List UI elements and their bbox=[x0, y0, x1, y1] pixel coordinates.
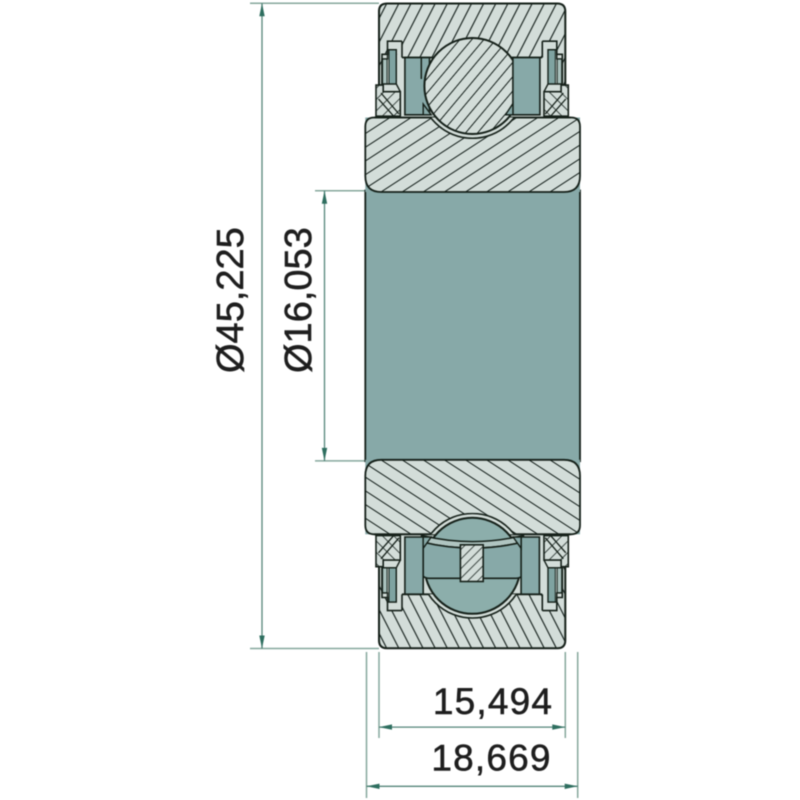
svg-text:15,494: 15,494 bbox=[433, 681, 553, 722]
svg-text:18,669: 18,669 bbox=[431, 738, 551, 779]
svg-text:Ø16,053: Ø16,053 bbox=[278, 227, 320, 373]
svg-text:Ø45,225: Ø45,225 bbox=[210, 227, 252, 373]
